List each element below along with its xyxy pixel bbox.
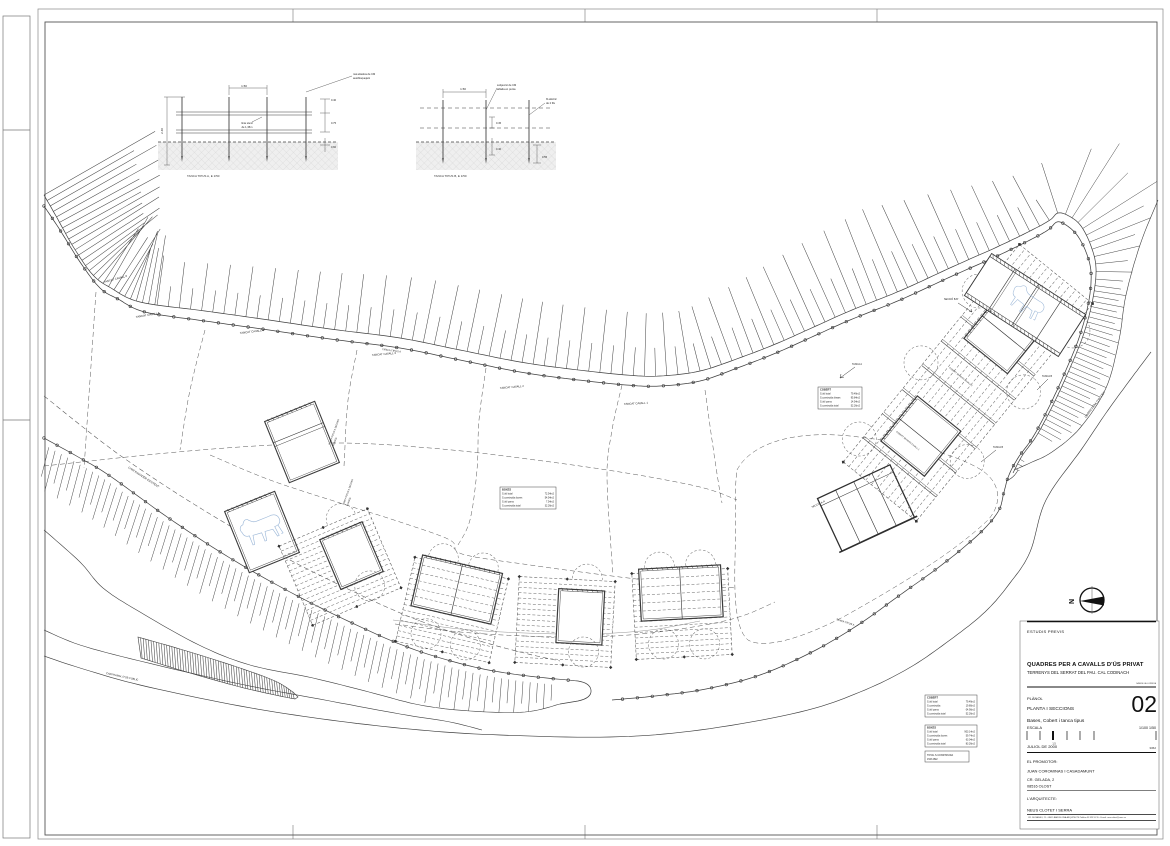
svg-text:95.84m2: 95.84m2 [851, 397, 861, 400]
svg-text:1.50: 1.50 [460, 87, 466, 91]
svg-text:TERRENYS DEL SERRAT DEL PAU. C: TERRENYS DEL SERRAT DEL PAU. CAL CODINAC… [1027, 670, 1129, 675]
svg-text:08516 OLOST: 08516 OLOST [1027, 785, 1052, 789]
svg-text:COBERT: COBERT [927, 696, 938, 700]
svg-text:0.60: 0.60 [331, 145, 337, 149]
svg-text:ESCALA: ESCALA [1027, 726, 1042, 730]
svg-text:79.49m2: 79.49m2 [966, 701, 976, 704]
svg-text:TANCA TIPUS A, E 1/50: TANCA TIPUS A, E 1/50 [187, 174, 220, 178]
svg-text:S.útil total: S.útil total [502, 493, 513, 496]
svg-text:autobloquejant: autobloquejant [353, 76, 370, 80]
svg-text:CR. GELADA, 2: CR. GELADA, 2 [1027, 778, 1054, 782]
svg-text:S.construida boxes: S.construida boxes [502, 497, 523, 500]
svg-text:7.54m2: 7.54m2 [546, 501, 555, 504]
svg-text:52.26m2: 52.26m2 [966, 713, 976, 716]
svg-text:TANCA TIPUS B, E 1/50: TANCA TIPUS B, E 1/50 [434, 174, 467, 178]
svg-text:mat.elàstica de CM: mat.elàstica de CM [353, 72, 375, 76]
svg-text:63.04m2: 63.04m2 [966, 739, 976, 742]
svg-text:JULIOL DE 2000: JULIOL DE 2000 [1027, 744, 1058, 749]
svg-text:S.construida binars: S.construida binars [820, 397, 841, 400]
svg-text:BOXES: BOXES [502, 488, 511, 492]
svg-text:S.útil porxo: S.útil porxo [502, 501, 515, 504]
svg-text:S.útil porxo: S.útil porxo [927, 709, 940, 712]
svg-text:COBERT: COBERT [820, 388, 831, 392]
svg-text:83.26m2: 83.26m2 [966, 743, 976, 746]
svg-text:S.construida total: S.construida total [820, 405, 839, 408]
svg-text:DATA DE LA LLICÈNCIA: DATA DE LA LLICÈNCIA [1136, 682, 1157, 685]
svg-text:S.útil total: S.útil total [820, 393, 831, 396]
svg-text:SECCIÓ B-B': SECCIÓ B-B' [944, 298, 959, 301]
svg-text:S.útil total: S.útil total [927, 701, 938, 704]
svg-text:1543.0M2: 1543.0M2 [927, 758, 938, 761]
svg-text:19.80m2: 19.80m2 [966, 705, 976, 708]
svg-text:1.50: 1.50 [241, 84, 247, 88]
svg-text:59.74m2: 59.74m2 [966, 735, 976, 738]
svg-text:52.26m2: 52.26m2 [851, 405, 861, 408]
svg-text:PLANTA I SECCIONS: PLANTA I SECCIONS [1027, 706, 1074, 712]
svg-text:0.40: 0.40 [496, 147, 502, 151]
svg-text:S.útil porxo: S.útil porxo [927, 739, 940, 742]
svg-text:L'ARQUITECTE:: L'ARQUITECTE: [1027, 796, 1057, 801]
svg-text:subjecció de CM: subjecció de CM [497, 83, 516, 87]
svg-text:79.49m2: 79.49m2 [851, 393, 861, 396]
svg-text:Bases, Cobert i tanca tipus: Bases, Cobert i tanca tipus [1027, 718, 1085, 724]
svg-text:3362: 3362 [1149, 746, 1156, 750]
svg-text:903.14m2: 903.14m2 [964, 731, 975, 734]
svg-text:32.26m2: 32.26m2 [545, 505, 555, 508]
svg-text:línia sòcol: línia sòcol [241, 121, 253, 125]
svg-text:EL PROMOTOR:: EL PROMOTOR: [1027, 759, 1057, 764]
svg-text:JUAN COROMINAS I CASADAMUNT: JUAN COROMINAS I CASADAMUNT [1027, 769, 1095, 774]
svg-text:QUADRES PER A CAVALLS D'ÚS PRI: QUADRES PER A CAVALLS D'ÚS PRIVAT [1027, 661, 1144, 668]
svg-text:0.55: 0.55 [542, 155, 548, 159]
svg-text:S.construida total: S.construida total [927, 743, 946, 746]
svg-text:TOTAL S.CONSTRUIDA: TOTAL S.CONSTRUIDA [927, 754, 954, 757]
svg-text:0.40: 0.40 [331, 98, 337, 102]
svg-text:S.útil total: S.útil total [927, 731, 938, 734]
svg-text:14.54m2: 14.54m2 [851, 401, 861, 404]
svg-text:S.construida boxes: S.construida boxes [927, 735, 948, 738]
svg-text:CR. DE MANSO, 21 - 08015 BARCE: CR. DE MANSO, 21 - 08015 BARCELONA ARQUI… [1028, 816, 1126, 819]
svg-text:de 2 fils: de 2 fils [546, 101, 556, 105]
svg-text:fil elèctric: fil elèctric [546, 97, 558, 101]
svg-text:BOXES: BOXES [927, 726, 936, 730]
svg-text:NEUS CLOTET I SERRA: NEUS CLOTET I SERRA [1027, 808, 1072, 813]
svg-text:S.útil porxo: S.útil porxo [820, 401, 833, 404]
svg-text:TANCA B: TANCA B [1042, 375, 1052, 378]
svg-text:1/100 1/50: 1/100 1/50 [1139, 726, 1156, 730]
svg-text:02: 02 [1131, 691, 1157, 717]
svg-text:0.75: 0.75 [331, 121, 337, 125]
svg-text:S.construida: S.construida [927, 705, 941, 708]
svg-text:S.construida total: S.construida total [502, 505, 521, 508]
svg-text:0.45: 0.45 [496, 121, 502, 125]
svg-text:2.40: 2.40 [160, 128, 164, 134]
svg-text:N: N [1069, 599, 1076, 604]
svg-text:54.54m2: 54.54m2 [545, 497, 555, 500]
svg-text:TANCA B: TANCA B [993, 446, 1003, 449]
svg-text:TANCA A: TANCA A [852, 363, 862, 366]
svg-text:aïllada en punta: aïllada en punta [497, 87, 516, 91]
svg-text:72.54m2: 72.54m2 [545, 493, 555, 496]
svg-text:S.construida total: S.construida total [927, 713, 946, 716]
svg-text:de 1,35m: de 1,35m [242, 125, 253, 129]
svg-text:04.90m2: 04.90m2 [966, 709, 976, 712]
svg-text:PLÀNOL: PLÀNOL [1027, 696, 1044, 701]
svg-text:ESTUDIS PREVIS: ESTUDIS PREVIS [1027, 629, 1064, 634]
